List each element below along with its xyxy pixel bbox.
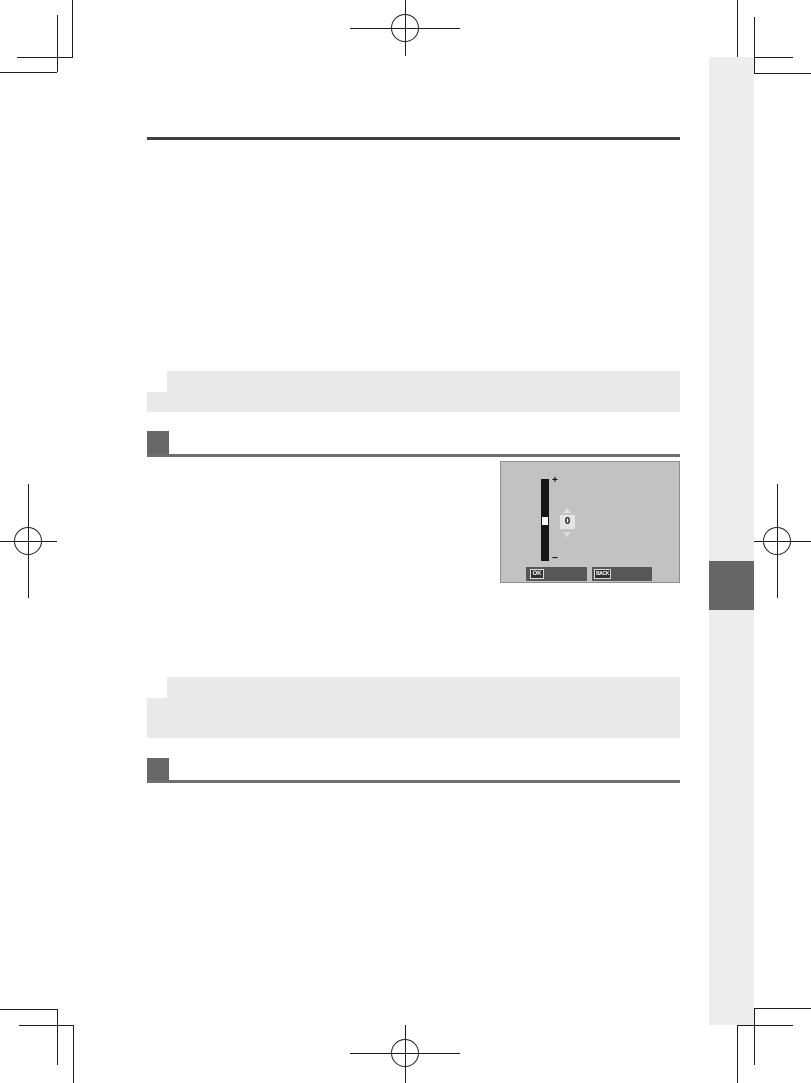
ok-button: OK (530, 569, 544, 579)
memo-note-box-2 (147, 677, 680, 738)
lcd-ok-guide-bar: OK (526, 567, 587, 581)
page-edge-band (709, 57, 754, 1025)
camera-lcd-illustration: + − 0 OK BACK (500, 461, 680, 583)
lcd-back-guide-bar: BACK (592, 567, 652, 581)
step-1-number-box (147, 431, 169, 454)
back-button: BACK (594, 569, 611, 579)
memo-note-box-1 (147, 371, 680, 412)
brightness-value: 0 (560, 515, 575, 529)
brightness-slider (541, 479, 549, 561)
brightness-slider-indicator (542, 517, 548, 525)
page-header-rule (147, 137, 680, 140)
step-2-heading-rule (147, 780, 680, 783)
brightness-increase-icon: + (552, 476, 562, 485)
step-1-heading-rule (147, 454, 680, 457)
brightness-decrease-icon: − (552, 554, 562, 563)
step-2-number-box (147, 758, 169, 781)
stepper-up-icon (563, 508, 571, 513)
chapter-tab (709, 561, 754, 610)
manual-page: { "page": { "kind": "camera-operating-ma… (0, 0, 811, 1083)
stepper-down-icon (563, 532, 571, 537)
memo-icon (147, 677, 167, 698)
memo-icon (147, 371, 167, 392)
